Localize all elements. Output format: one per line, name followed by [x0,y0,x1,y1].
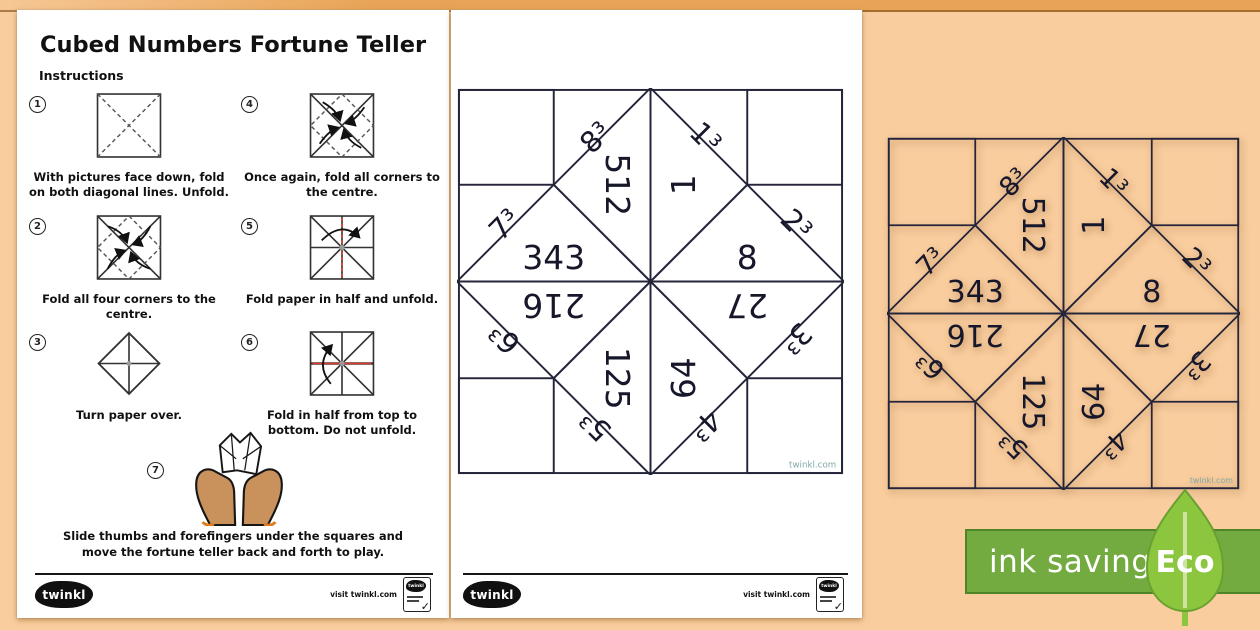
fold-corners-diagram-icon [96,214,163,281]
footer-rule [35,573,433,575]
watermark: twinkl.com [789,460,836,470]
eco-leaf-icon: Eco [1139,486,1231,628]
corner-square-yellow [747,90,842,185]
value-512: 512 [598,153,637,216]
step-5-number: 5 [241,218,258,235]
corner-square-pink [459,378,554,473]
page-title: Cubed Numbers Fortune Teller [17,32,449,58]
label-2-cubed: 2³ [1175,241,1216,282]
step-4-number: 4 [241,96,258,113]
label-7-cubed: 7³ [910,241,951,282]
preview-canvas: Cubed Numbers Fortune Teller Instruction… [0,0,1260,630]
turn-over-diagram-icon [96,330,163,397]
value-343: 343 [522,238,585,277]
value-27: 27 [726,286,768,325]
badge-checkmark-icon: ✓ [421,600,430,613]
corner-square-green [889,139,975,225]
value-125: 125 [598,347,637,410]
label-3-cubed: 3³ [774,316,819,361]
instructions-page: Cubed Numbers Fortune Teller Instruction… [17,10,449,618]
label-1-cubed: 1³ [683,115,728,160]
badge-twinkl-logo: twinkl [819,580,839,592]
twinkl-logo: twinkl [463,581,521,608]
value-216: 216 [522,286,585,325]
fold-top-bottom-diagram-icon [309,330,376,397]
fortune-teller-template: 512 1 343 8 216 27 125 64 8³ 1³ 7³ 2³ 6³… [457,88,844,475]
label-4-cubed: 4³ [1093,424,1134,465]
value-64: 64 [664,357,703,399]
badge-line [820,600,832,602]
value-216: 216 [947,317,1004,352]
instructions-heading: Instructions [39,68,124,83]
corner-square-teal [747,378,842,473]
label-4-cubed: 4³ [683,403,728,448]
quality-badge: twinkl ✓ [816,577,844,612]
badge-twinkl-logo: twinkl [406,580,426,592]
step-1-number: 1 [29,96,46,113]
fold-corners-again-diagram-icon [309,92,376,159]
value-64: 64 [1077,383,1112,421]
step-7-text: Slide thumbs and forefingers under the s… [45,529,421,560]
footer-rule [463,573,848,575]
fortune-teller-ink-saving: 512 1 343 8 216 27 125 64 8³ 1³ 7³ 2³ 6³… [887,137,1240,490]
corner-square-green [459,90,554,185]
step-2-text: Fold all four corners to the centre. [29,292,229,322]
value-27: 27 [1133,317,1171,352]
step-2-number: 2 [29,218,46,235]
fortune-teller-page: 512 1 343 8 216 27 125 64 8³ 1³ 7³ 2³ 6³… [451,10,862,618]
label-7-cubed: 7³ [482,202,527,247]
eco-label: Eco [1156,545,1215,580]
quality-badge: twinkl ✓ [403,577,431,612]
fold-diagonals-diagram-icon [96,92,163,159]
step-4-text: Once again, fold all corners to the cent… [241,170,443,200]
ink-saving-label: ink saving [967,544,1152,580]
visit-twinkl-link-text: visit twinkl.com [330,590,397,599]
label-6-cubed: 6³ [482,316,527,361]
value-512: 512 [1015,197,1050,254]
step-7-number: 7 [147,462,164,479]
value-343: 343 [947,275,1004,310]
label-3-cubed: 3³ [1175,344,1216,385]
corner-square-pink [889,402,975,488]
step-3-text: Turn paper over. [29,408,229,423]
label-6-cubed: 6³ [910,344,951,385]
label-2-cubed: 2³ [774,202,819,247]
visit-twinkl-link-text: visit twinkl.com [743,590,810,599]
hands-playing-icon [180,430,298,526]
fold-half-unfold-diagram-icon [309,214,376,281]
badge-line [407,600,419,602]
corner-square-yellow [1152,139,1238,225]
value-125: 125 [1015,373,1050,430]
watermark: twinkl.com [1190,476,1233,485]
value-1: 1 [664,174,703,195]
value-1: 1 [1077,216,1112,235]
twinkl-logo: twinkl [35,581,93,608]
value-8: 8 [737,238,758,277]
step-6-number: 6 [241,334,258,351]
badge-line [407,596,423,598]
step-1-text: With pictures face down, fold on both di… [29,170,229,200]
step-3-number: 3 [29,334,46,351]
value-8: 8 [1142,275,1161,310]
badge-checkmark-icon: ✓ [834,600,843,613]
step-5-text: Fold paper in half and unfold. [241,292,443,307]
label-1-cubed: 1³ [1093,162,1134,203]
badge-line [820,596,836,598]
